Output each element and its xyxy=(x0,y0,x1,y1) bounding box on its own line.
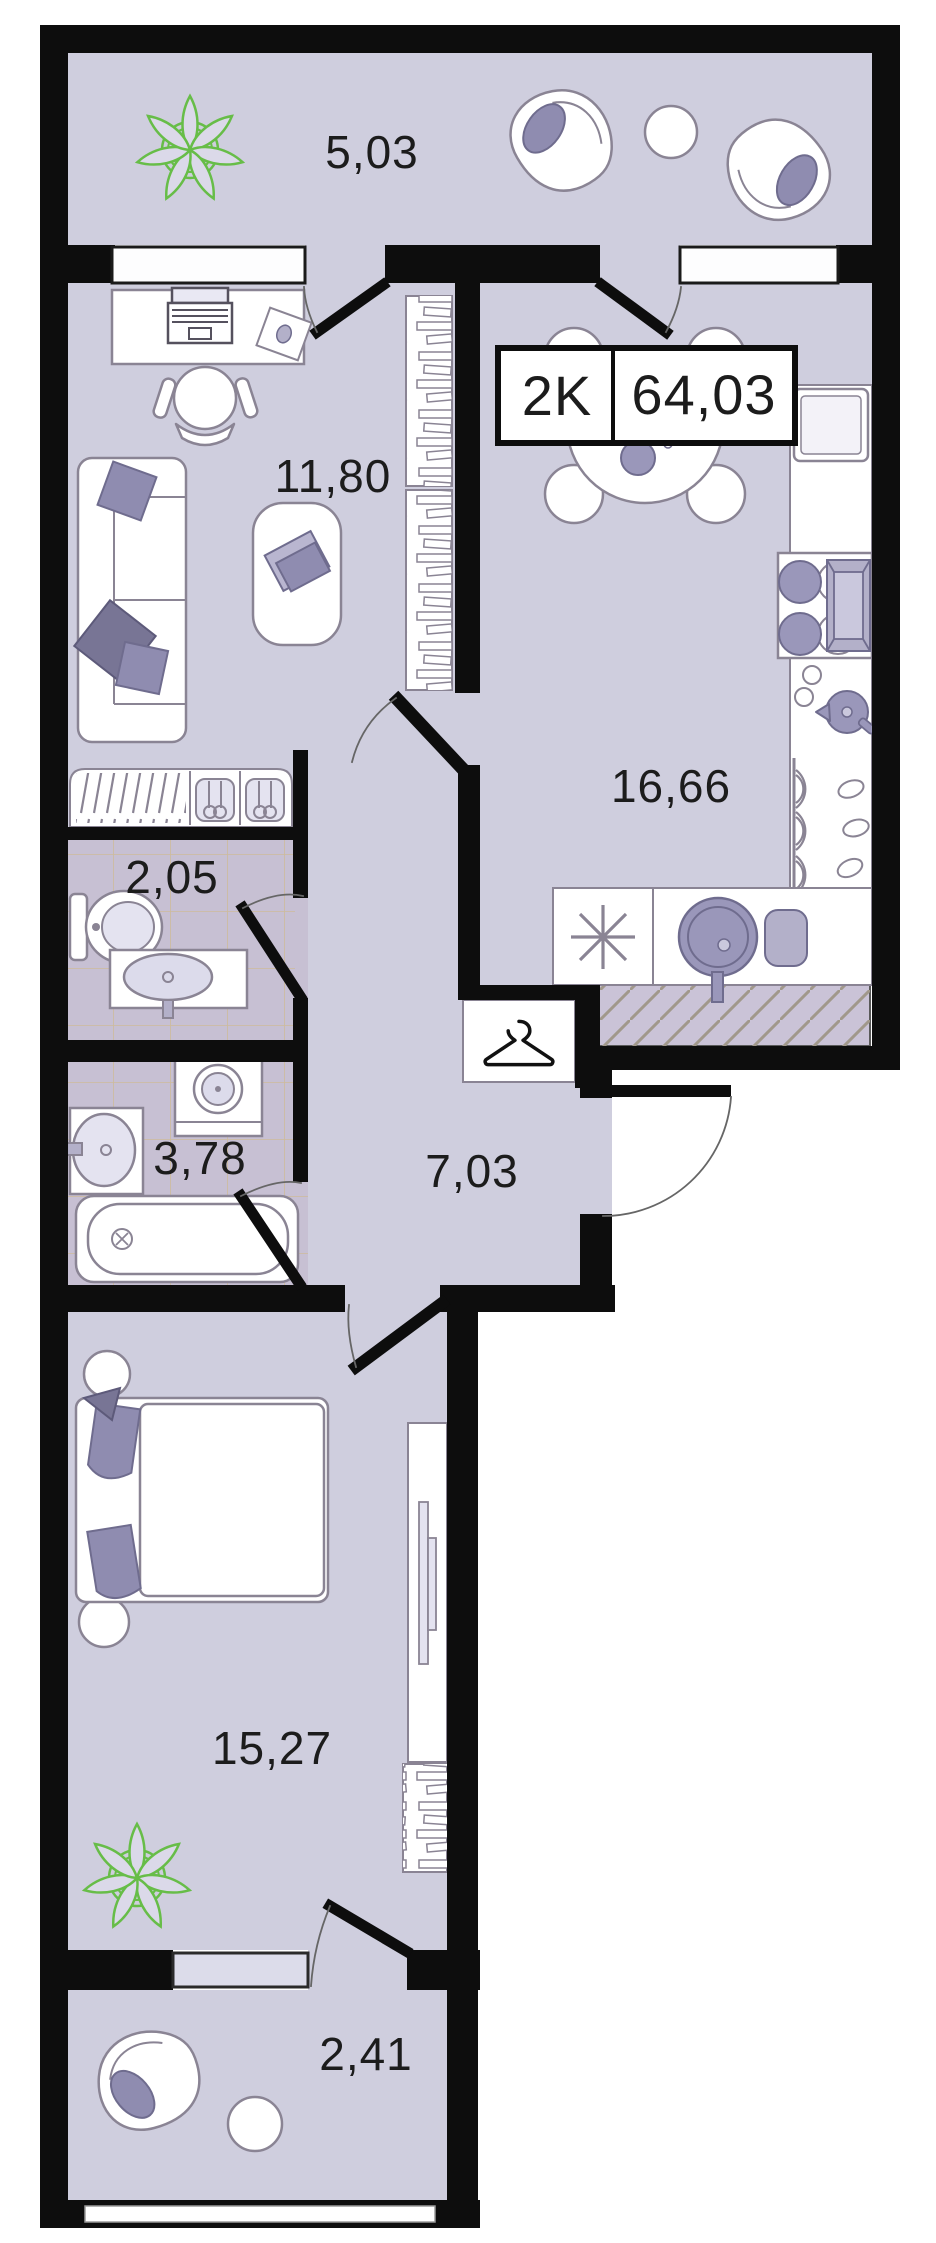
window xyxy=(173,1953,308,1987)
bedroom-wardrobe xyxy=(403,1764,447,1872)
doorway-gap xyxy=(308,1950,407,1990)
desk xyxy=(112,288,312,364)
bookshelf xyxy=(406,296,452,690)
hanger-unit-icon xyxy=(246,779,284,821)
ventilation-shaft xyxy=(598,985,870,1046)
wall xyxy=(40,245,115,283)
room-label-loggia-bottom: 2,41 xyxy=(319,2028,413,2080)
wall xyxy=(293,840,308,898)
wall xyxy=(293,1062,308,1182)
wc-sink xyxy=(110,950,247,1018)
unit-area-label: 64,03 xyxy=(631,363,776,426)
pillow-icon xyxy=(87,1525,141,1601)
side-table xyxy=(645,106,697,158)
sofa xyxy=(74,458,186,742)
side-table xyxy=(228,2097,282,2151)
duvet xyxy=(140,1404,324,1596)
coffee-table xyxy=(253,503,341,645)
nightstand xyxy=(79,1597,129,1647)
wall xyxy=(40,25,900,53)
wall xyxy=(68,1950,173,1990)
window xyxy=(680,247,838,283)
wall xyxy=(872,25,900,1070)
wall xyxy=(68,1040,308,1062)
room-label-bathroom: 3,78 xyxy=(153,1132,247,1184)
wall xyxy=(447,1312,478,2228)
kitchen-sink-counter xyxy=(553,888,872,1002)
window xyxy=(85,2206,435,2222)
stove-icon xyxy=(778,553,872,658)
wardrobe-row xyxy=(70,769,292,827)
laptop-icon xyxy=(168,288,232,343)
hanger-unit-icon xyxy=(196,779,234,821)
wall xyxy=(575,1046,900,1070)
doorway-gap xyxy=(580,1098,612,1214)
unit-label-box: 2K 64,03 xyxy=(498,348,795,443)
hob-asterisk-icon xyxy=(571,905,635,969)
entry-door-leaf xyxy=(600,1085,731,1097)
nightstand xyxy=(84,1351,130,1397)
bathroom-sink xyxy=(66,1108,143,1194)
wall xyxy=(455,283,480,693)
floor-plan-page: 2K 64,03 5,03 11,80 16,66 2,05 3,78 7,03… xyxy=(0,0,936,2243)
hall-closet xyxy=(463,1000,575,1082)
doorway-gap xyxy=(455,690,480,765)
unit-rooms-label: 2K xyxy=(522,364,593,427)
doorway-gap xyxy=(305,245,385,283)
room-label-kitchen: 16,66 xyxy=(611,760,731,812)
room-label-wc: 2,05 xyxy=(125,851,219,903)
tv-icon xyxy=(419,1502,428,1664)
clothes-icon xyxy=(76,773,186,823)
wall xyxy=(836,245,900,283)
pillow-icon xyxy=(116,642,168,694)
wall xyxy=(407,1950,480,1990)
wall xyxy=(293,998,308,1062)
room-label-bedroom: 15,27 xyxy=(212,1722,332,1774)
washing-machine-icon xyxy=(175,1052,262,1136)
doorway-gap xyxy=(600,245,680,283)
wall xyxy=(385,245,600,283)
wall xyxy=(293,750,308,840)
room-label-living-room: 11,80 xyxy=(275,450,392,502)
wall xyxy=(40,827,308,840)
tv-console xyxy=(408,1423,447,1762)
wall xyxy=(580,1214,612,1312)
wall xyxy=(40,25,68,2228)
cutting-board-icon xyxy=(765,910,807,966)
window xyxy=(112,247,305,283)
wall xyxy=(458,765,480,997)
room-label-hallway: 7,03 xyxy=(425,1145,519,1197)
floor-plan: 2K 64,03 5,03 11,80 16,66 2,05 3,78 7,03… xyxy=(0,0,936,2243)
room-label-loggia-top: 5,03 xyxy=(325,126,419,178)
